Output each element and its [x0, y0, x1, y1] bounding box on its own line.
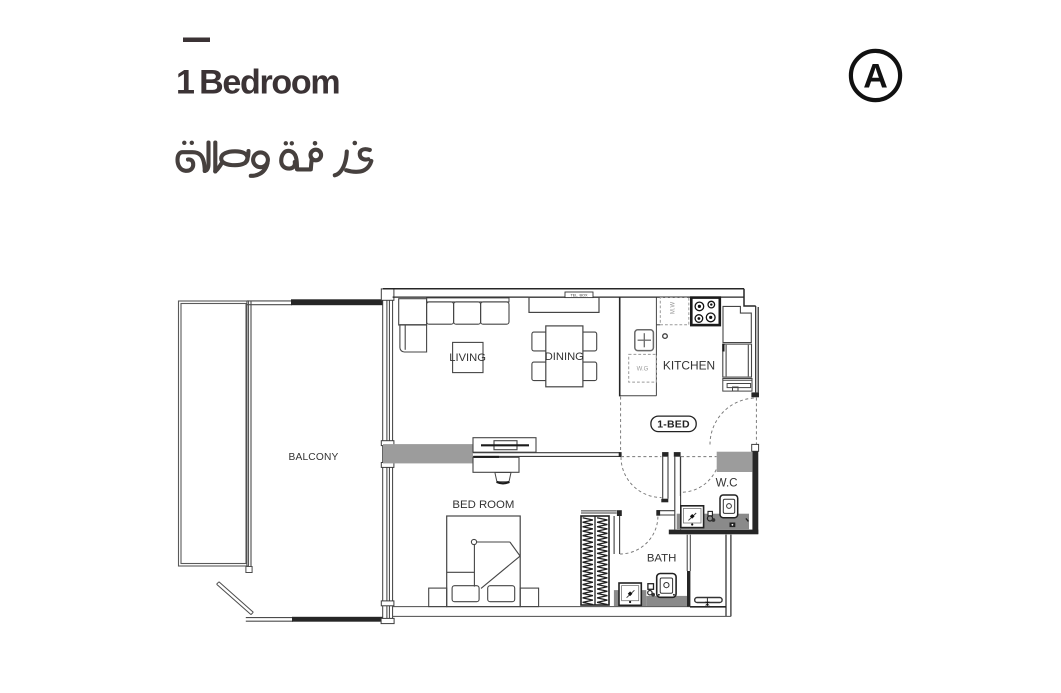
- svg-text:M.W: M.W: [671, 301, 677, 314]
- svg-text:W.G: W.G: [637, 367, 649, 373]
- svg-text:1 Bedroom: 1 Bedroom: [176, 64, 339, 102]
- svg-text:KITCHEN: KITCHEN: [663, 359, 715, 373]
- svg-text:TEL. BOX: TEL. BOX: [570, 293, 588, 297]
- svg-text:BATH: BATH: [647, 553, 677, 565]
- svg-text:1-BED: 1-BED: [657, 419, 690, 431]
- svg-text:BED ROOM: BED ROOM: [452, 499, 514, 511]
- svg-text:LIVING: LIVING: [449, 352, 486, 364]
- svg-text:BALCONY: BALCONY: [288, 452, 338, 463]
- svg-text:DINING: DINING: [545, 351, 584, 363]
- svg-text:A: A: [863, 57, 888, 95]
- svg-text:W.C: W.C: [716, 477, 738, 490]
